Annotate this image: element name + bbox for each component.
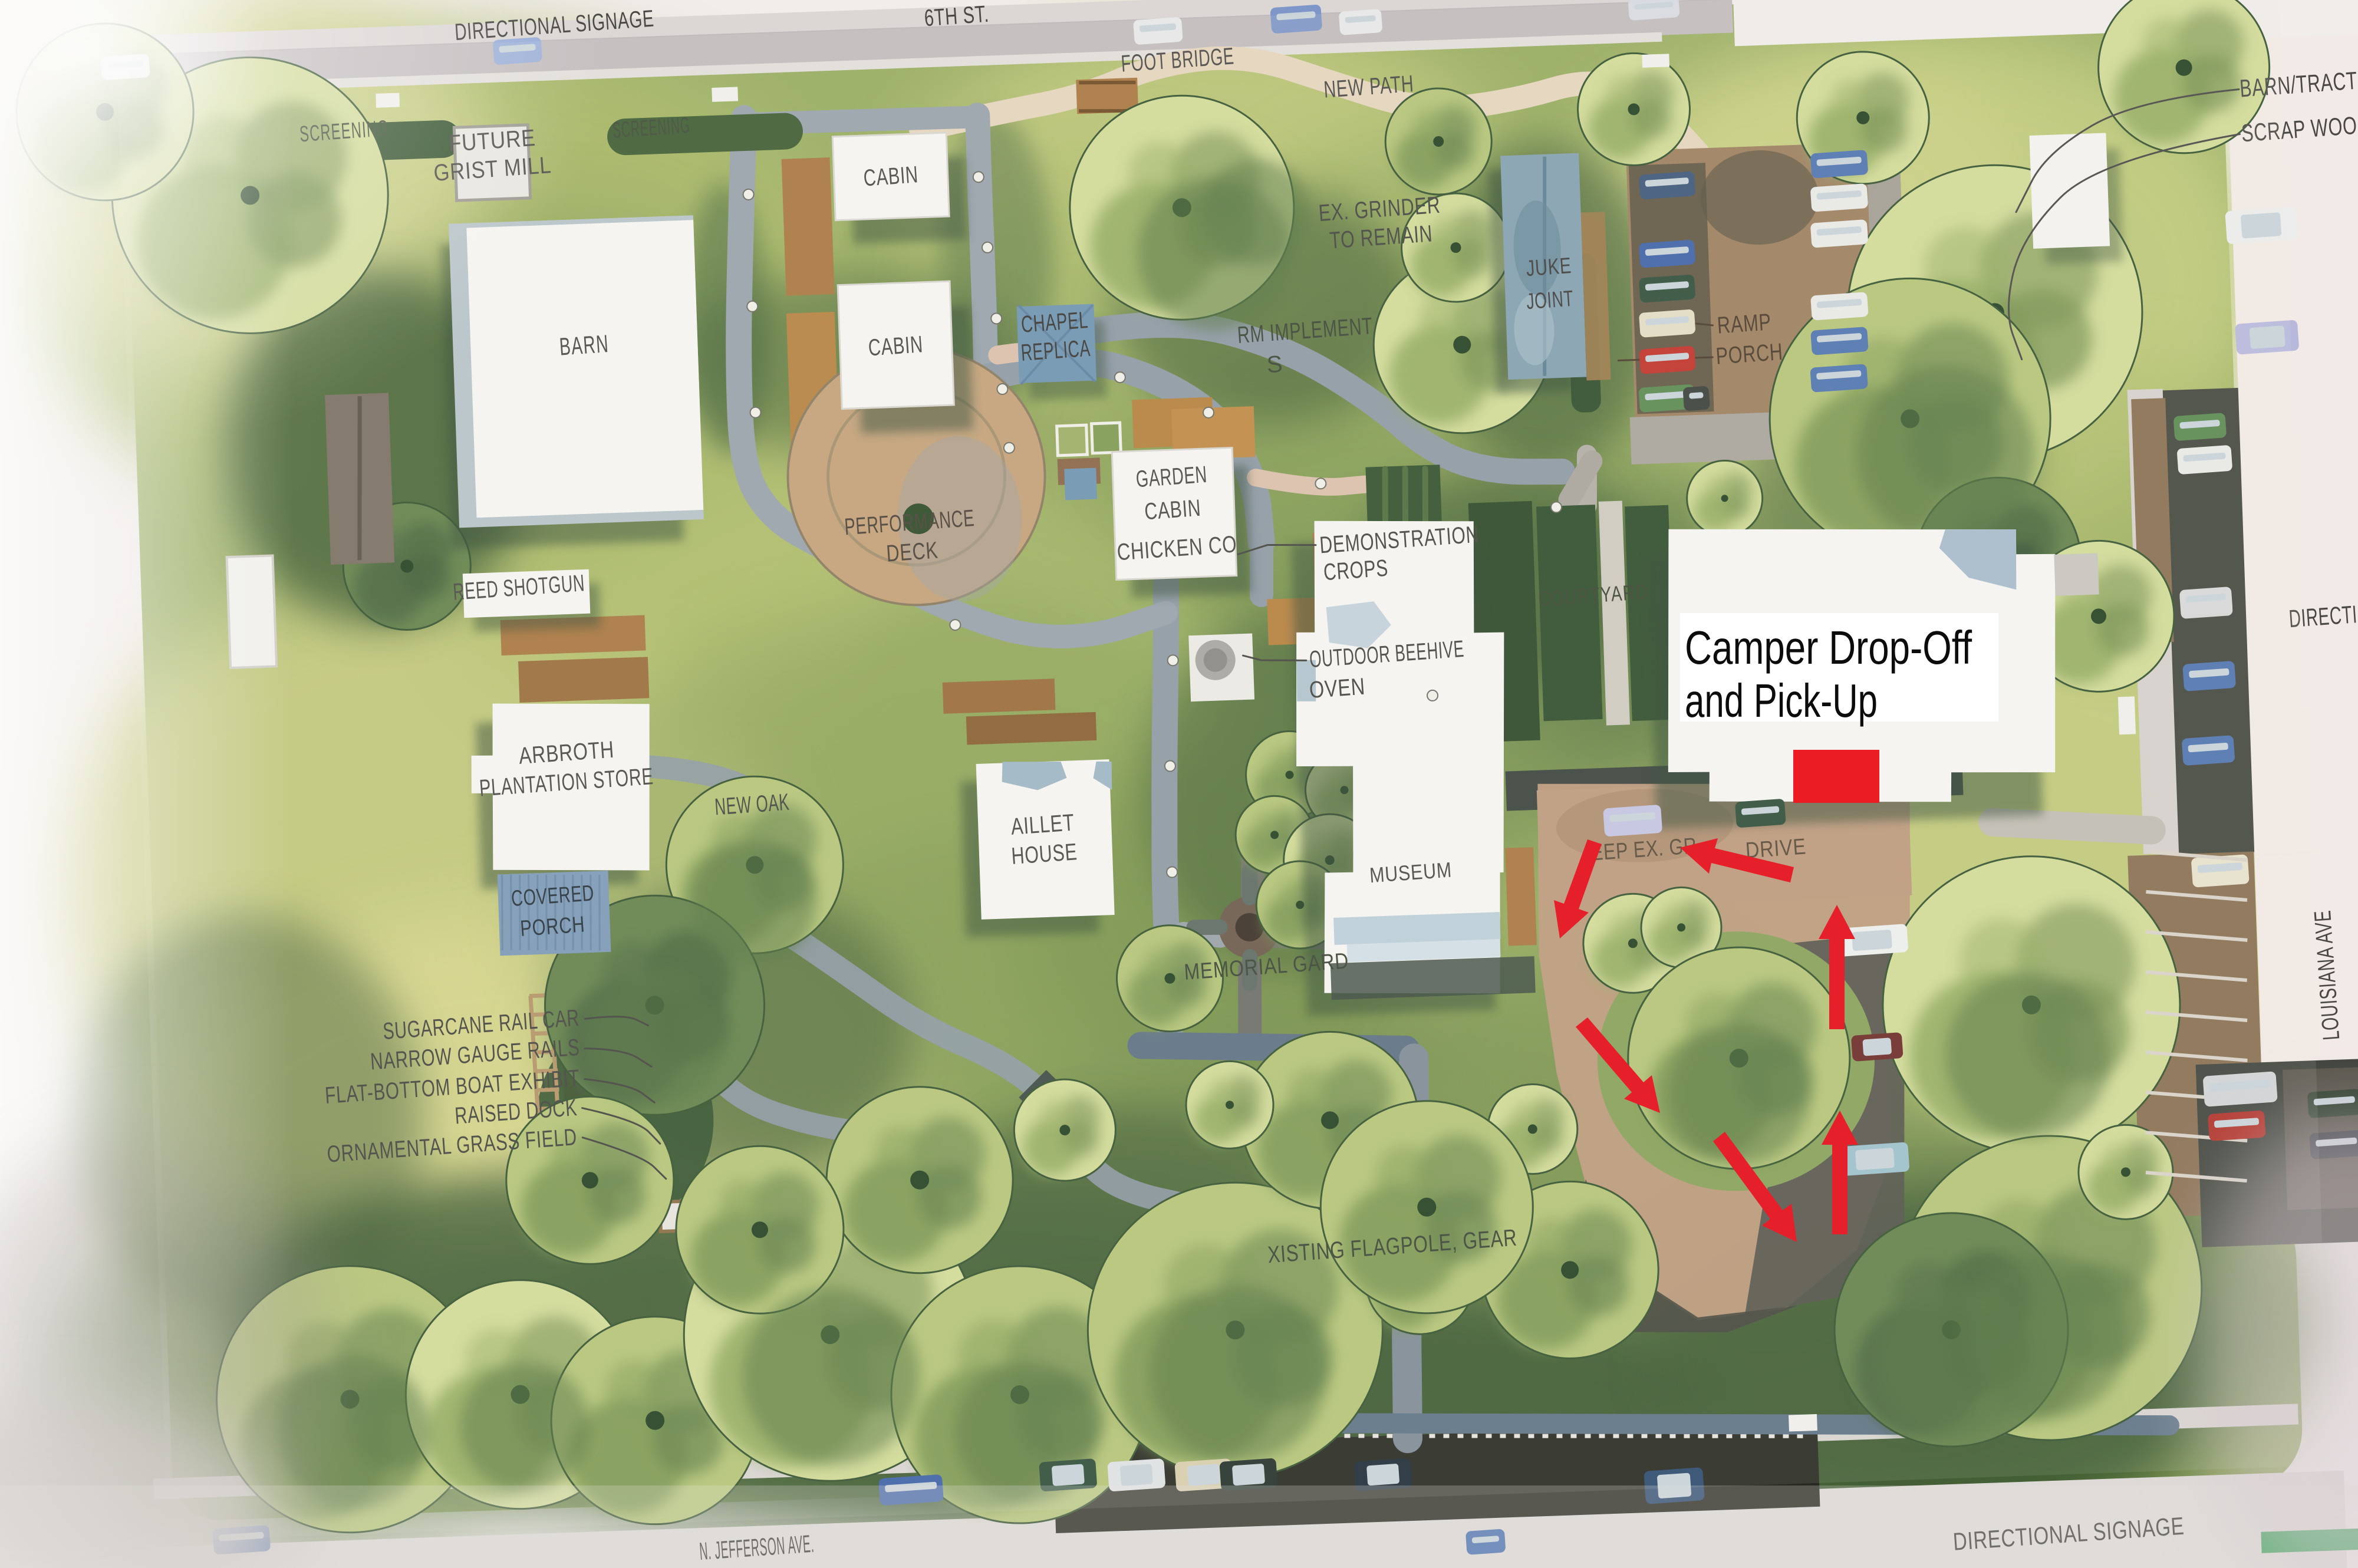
svg-text:and Pick-Up: and Pick-Up xyxy=(1685,674,1878,727)
svg-text:Camper Drop-Off: Camper Drop-Off xyxy=(1685,621,1972,674)
